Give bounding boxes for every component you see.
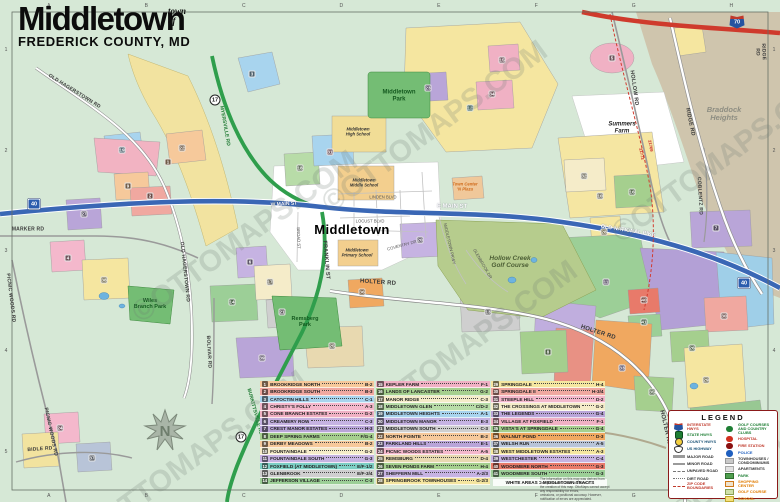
leader-dots	[560, 428, 594, 429]
map-badge-9: 9	[125, 183, 132, 190]
index-number: 30	[493, 389, 500, 395]
index-grid-ref: B-2	[365, 441, 373, 446]
index-number: 22	[377, 433, 384, 439]
index-row: 21MIDDLETOWN SOUTHC-3	[376, 426, 490, 433]
index-name: SEVEN PONDS FARM	[386, 464, 434, 469]
index-grid-ref: G-4	[596, 426, 604, 431]
index-name: FOXFIELD (AT MIDDLETOWN)	[270, 464, 337, 469]
index-row: 35VISTA'S AT SPRINGDALEG-4	[491, 426, 605, 433]
index-grid-ref: A-5	[596, 441, 604, 446]
sw-lightgray-icon	[723, 466, 736, 473]
map-badge-12: 12	[467, 105, 474, 112]
legend-item: HOSPITAL	[723, 435, 774, 442]
index-number: 37	[493, 441, 500, 447]
index-name: STEEPLE HILL	[501, 397, 534, 402]
leader-dots	[438, 428, 479, 429]
index-name: WALNUT POND	[501, 434, 536, 439]
map-badge-4: 4	[65, 255, 72, 262]
index-row: 39WESTCHESTERC-4	[491, 455, 605, 462]
legend-item-label: SHOPPING CENTER	[738, 480, 774, 488]
leader-dots	[415, 457, 478, 458]
compass-rose: N	[143, 408, 187, 457]
index-number: 1	[262, 381, 269, 387]
index-grid-ref: B-2	[480, 434, 488, 439]
dot-green-icon	[723, 426, 736, 433]
index-row: 3CATOCTIN HILLSC-1	[260, 396, 374, 403]
index-row: 22NORTH POINTEB-2	[376, 433, 490, 440]
map-badge-13: 13	[485, 309, 492, 316]
index-name: DERBY MEADOWS	[270, 441, 313, 446]
legend-item: MINOR ROAD	[672, 460, 723, 467]
index-grid-ref: A-3	[596, 449, 604, 454]
index-row: 14JEFFERSON VILLAGEC-3	[260, 478, 374, 485]
md-shield: 17	[210, 95, 221, 106]
index-row: 36WALNUT PONDD-3	[491, 433, 605, 440]
title-block: town of Middletown FREDERICK COUNTY, MD	[18, 2, 190, 49]
map-badge-35: 35	[649, 389, 656, 396]
index-name: GLENBROOK	[270, 471, 300, 476]
index-grid-ref: H-4	[596, 382, 604, 387]
index-row: 24PICNIC WOODS ESTATESA-5	[376, 448, 490, 455]
index-number: 35	[493, 426, 500, 432]
index-grid-ref: G-2	[365, 449, 373, 454]
map-badge-8: 8	[545, 349, 552, 356]
grid-letter: D	[339, 3, 343, 9]
index-row: 15KEPLER FARMF-1	[376, 381, 490, 388]
index-grid-ref: C/D-2	[476, 404, 488, 409]
legend-item-label: GOLF COURSE	[738, 490, 767, 494]
legend-item-label: MINOR ROAD	[687, 462, 713, 466]
legend-item-label: POLICE	[738, 451, 752, 455]
index-name: CONE BRANCH ESTATES	[270, 411, 327, 416]
line-dirt-icon	[672, 475, 685, 482]
index-grid-ref: E-3	[481, 419, 488, 424]
index-name: MANOR RIDGE	[386, 397, 420, 402]
index-grid-ref: G-3	[596, 464, 604, 469]
index-name: DEEP SPRING FARMS	[270, 434, 320, 439]
index-name: MIDDLETOWN GLEN	[386, 404, 433, 409]
index-name: FOUNTAINDALE	[270, 449, 307, 454]
line-zip-icon	[672, 483, 685, 490]
legend-box: LEGEND INTERSTATE HWYSSTATE HWYSCOUNTY H…	[668, 410, 778, 499]
legend-item-label: US HIGHWAY	[687, 447, 712, 451]
index-name: WELSH RUN	[501, 441, 529, 446]
leader-dots	[428, 442, 478, 443]
index-grid-ref: G-3	[596, 471, 604, 476]
index-name: LANDS OF LANCASTER	[386, 389, 440, 394]
map-badge-33: 33	[619, 365, 626, 372]
index-row: 1BROOKRIDGE NORTHB-2	[260, 381, 374, 388]
index-grid-ref: F/G-4	[361, 434, 373, 439]
index-grid-ref: G-2	[365, 411, 373, 416]
map-badge-25: 25	[329, 343, 336, 350]
interstate-icon	[672, 424, 685, 431]
leader-dots	[309, 450, 363, 451]
leader-dots	[531, 442, 593, 443]
line-major-icon	[672, 453, 685, 460]
index-grid-ref: G-3	[365, 456, 373, 461]
legend-title: LEGEND	[672, 413, 774, 422]
leader-dots	[582, 405, 593, 406]
leader-dots	[442, 390, 478, 391]
index-name: VILLAGE AT FOXFIELD	[501, 419, 553, 424]
index-number: 12	[262, 463, 269, 469]
leader-dots	[549, 472, 593, 473]
map-badge-15: 15	[499, 57, 506, 64]
disclaimer-line: the creation of this map. OttoMaps canno…	[540, 485, 610, 493]
index-name: KEPLER FARM	[386, 382, 420, 387]
title-prefix: town of	[168, 6, 190, 26]
map-badge-32: 32	[581, 173, 588, 180]
leader-dots	[425, 472, 474, 473]
map-badge-40: 40	[641, 297, 648, 304]
line-unpaved-icon	[672, 468, 685, 475]
grid-number: 3	[5, 248, 8, 254]
leader-dots	[538, 390, 590, 391]
index-grid-ref: C-1	[365, 397, 373, 402]
map-canvas: ©OTTOMAPS.COM©OTTOMAPS.COM©OTTOMAPS.COM©…	[0, 0, 780, 502]
leader-dots	[555, 420, 595, 421]
index-name: SPRINGBROOK TOWNHOUSES	[386, 478, 457, 483]
index-number: 38	[493, 448, 500, 454]
map-badge-22: 22	[179, 145, 186, 152]
index-grid-ref: H-3/4	[592, 389, 603, 394]
map-badge-38: 38	[101, 277, 108, 284]
index-grid-ref: G-2	[480, 389, 488, 394]
index-grid-ref: A-3	[365, 404, 373, 409]
index-number: 39	[493, 456, 500, 462]
map-badge-41: 41	[641, 319, 648, 326]
index-row: 29SPRINGDALEH-4	[491, 381, 605, 388]
index-row: 13GLENBROOKE/F-3/4	[260, 470, 374, 477]
legend-item-label: DIRT ROAD	[687, 477, 709, 481]
leader-dots	[534, 383, 594, 384]
leader-dots	[311, 420, 363, 421]
sw-school-icon	[723, 496, 736, 502]
page-title: Middletown	[18, 2, 190, 37]
leader-dots	[439, 420, 479, 421]
index-name: MIDDLETOWN MANOR	[386, 419, 437, 424]
index-number: 4	[262, 403, 269, 409]
leader-dots	[311, 398, 363, 399]
grid-letter: A	[47, 493, 50, 499]
index-grid-ref: B-3	[365, 389, 373, 394]
index-number: 40	[493, 463, 500, 469]
dot-darkred-icon	[723, 443, 736, 450]
index-number: 24	[377, 448, 384, 454]
index-number: 21	[377, 426, 384, 432]
grid-letter: D	[339, 493, 343, 499]
index-row: 8DEEP SPRING FARMSF/G-4	[260, 433, 374, 440]
index-name: CREAMERY ROW	[270, 419, 309, 424]
index-name: THE LEGENDS	[501, 411, 534, 416]
index-number: 3	[262, 396, 269, 402]
grid-letter: F	[535, 3, 538, 9]
index-row: 28SPRINGBROOK TOWNHOUSESG-2/3	[376, 478, 490, 485]
grid-number: 4	[773, 348, 776, 354]
index-grid-ref: E/F-3/4	[357, 471, 372, 476]
index-row: 11FOUNTAINDALE SOUTHG-3	[260, 455, 374, 462]
legend-item-label: TOWNHOUSES / CONDOMINIUMS	[738, 457, 774, 465]
us-icon	[672, 446, 685, 453]
index-number: 33	[493, 411, 500, 417]
index-grid-ref: A-1	[480, 411, 488, 416]
index-row: 27SHEFFERN MILLA-2/3	[376, 470, 490, 477]
index-grid-ref: C-3	[480, 397, 488, 402]
leader-dots	[322, 390, 363, 391]
map-badge-6: 6	[247, 259, 254, 266]
map-badge-5: 5	[609, 55, 616, 62]
index-number: 9	[262, 441, 269, 447]
map-badge-28: 28	[601, 229, 608, 236]
map-badge-2: 2	[147, 193, 154, 200]
index-name: SHEFFERN MILL	[386, 471, 424, 476]
index-row: 16LANDS OF LANCASTERG-2	[376, 388, 490, 395]
legend-item-label: UNPAVED ROAD	[687, 469, 718, 473]
index-row: 20MIDDLETOWN MANORE-3	[376, 418, 490, 425]
legend-item: GOLF COURSES AND COUNTRY CLUBS	[723, 423, 774, 435]
index-number: 29	[493, 381, 500, 387]
index-grid-ref: A-5	[480, 449, 488, 454]
index-name: WEST MIDDLETOWN ESTATES	[501, 449, 570, 454]
legend-item-label: PARK	[738, 474, 749, 478]
index-row: 2BROOKRIDGE SOUTHB-3	[260, 388, 374, 395]
index-grid-ref: D-4	[480, 456, 488, 461]
index-name: SPRINGDALE	[501, 382, 532, 387]
index-name: PARKLAND HILLS	[386, 441, 427, 446]
index-row: 10FOUNTAINDALEG-2	[260, 448, 374, 455]
legend-item: APARTMENTS	[723, 465, 774, 472]
index-name: WOODMERE NORTH	[501, 464, 548, 469]
index-number: 19	[377, 411, 384, 417]
index-row: 4CHRISTY'S FOLLYA-3	[260, 403, 374, 410]
index-name: THE CROSSINGS AT MIDDLETOWN	[501, 404, 580, 409]
index-row: 6CREAMERY ROWC-3	[260, 418, 374, 425]
index-name: BROOKRIDGE NORTH	[270, 382, 320, 387]
index-number: 34	[493, 418, 500, 424]
map-badge-18: 18	[297, 165, 304, 172]
grid-number: 4	[5, 348, 8, 354]
grid-letter: C	[242, 493, 246, 499]
index-row: 17MANOR RIDGEC-3	[376, 396, 490, 403]
index-name: MIDDLETOWN SOUTH	[386, 426, 436, 431]
index-number: 2	[262, 389, 269, 395]
map-badge-23: 23	[425, 85, 432, 92]
map-badge-3: 3	[249, 71, 256, 78]
map-badge-30: 30	[721, 313, 728, 320]
legend-item: GOLF COURSE	[723, 488, 774, 495]
legend-item: ZIP CODE BOUNDARIES	[672, 482, 723, 490]
legend-left-column: INTERSTATE HWYSSTATE HWYSCOUNTY HWYSUS H…	[672, 423, 723, 502]
index-grid-ref: C-3	[480, 426, 488, 431]
index-row: 30SPRINGDALE IIH-3/4	[491, 388, 605, 395]
index-name: CREST MANOR ESTATES	[270, 426, 327, 431]
legend-item-label: FIRE STATION	[738, 444, 764, 448]
title-subtitle: FREDERICK COUNTY, MD	[18, 34, 190, 49]
index-number: 31	[493, 396, 500, 402]
grid-letter: B	[145, 493, 148, 499]
grid-number: 2	[5, 148, 8, 154]
index-number: 18	[377, 403, 384, 409]
map-badge-20: 20	[417, 237, 424, 244]
leader-dots	[329, 413, 362, 414]
index-number: 32	[493, 403, 500, 409]
legend-item: FIRE STATION	[723, 443, 774, 450]
map-badge-29: 29	[703, 377, 710, 384]
index-row: 23PARKLAND HILLSE-1	[376, 441, 490, 448]
legend-item: UNPAVED ROAD	[672, 468, 723, 475]
leader-dots	[536, 413, 593, 414]
index-name: JEFFERSON VILLAGE	[270, 478, 320, 483]
index-number: 36	[493, 433, 500, 439]
legend-item-label: APARTMENTS	[738, 467, 765, 471]
index-number: 15	[377, 381, 384, 387]
leader-dots	[538, 435, 594, 436]
index-grid-ref: B-2	[365, 382, 373, 387]
index-name: CHRISTY'S FOLLY	[270, 404, 311, 409]
index-number: 20	[377, 418, 384, 424]
index-number: 17	[377, 396, 384, 402]
index-row: 33THE LEGENDSG-4	[491, 411, 605, 418]
grid-letter: H	[729, 3, 733, 9]
leader-dots	[421, 398, 478, 399]
line-minor-icon	[672, 461, 685, 468]
leader-dots	[445, 450, 478, 451]
index-name: WOODMERE SOUTH	[501, 471, 547, 476]
map-badge-39: 39	[259, 355, 266, 362]
legend-item: SHOPPING CENTER	[723, 480, 774, 488]
index-name: PICNIC WOODS ESTATES	[386, 449, 444, 454]
map-badge-24: 24	[57, 425, 64, 432]
index-number: 25	[377, 456, 384, 462]
index-number: 10	[262, 448, 269, 454]
index-row: 5CONE BRANCH ESTATESG-2	[260, 411, 374, 418]
index-column: 15KEPLER FARMF-116LANDS OF LANCASTERG-21…	[376, 381, 490, 485]
index-grid-ref: C-3	[365, 419, 373, 424]
index-name: BROOKRIDGE SOUTH	[270, 389, 320, 394]
index-grid-ref: E/F-1/2	[357, 464, 372, 469]
index-number: 6	[262, 418, 269, 424]
map-badge-7: 7	[713, 225, 720, 232]
index-number: 13	[262, 470, 269, 476]
grid-number: 3	[773, 248, 776, 254]
grid-letter: E	[437, 3, 440, 9]
index-name: NORTH POINTE	[386, 434, 421, 439]
index-row: 37WELSH RUNA-5	[491, 441, 605, 448]
index-row: 40WOODMERE NORTHG-3	[491, 463, 605, 470]
index-number: 27	[377, 470, 384, 476]
compass-n-label: N	[160, 423, 171, 440]
index-number: 5	[262, 411, 269, 417]
grid-number: 2	[773, 148, 776, 154]
legend-item: TOWNHOUSES / CONDOMINIUMS	[723, 457, 774, 465]
index-grid-ref: E-1	[481, 441, 488, 446]
leader-dots	[539, 457, 594, 458]
index-grid-ref: C-3	[365, 478, 373, 483]
grid-letter: F	[535, 493, 538, 499]
index-column: 1BROOKRIDGE NORTHB-22BROOKRIDGE SOUTHB-3…	[260, 381, 374, 485]
leader-dots	[423, 435, 478, 436]
index-row: 32THE CROSSINGS AT MIDDLETOWNG-2	[491, 403, 605, 410]
map-badge-36: 36	[359, 289, 366, 296]
grid-number: 1	[5, 47, 8, 53]
index-row: 38WEST MIDDLETOWN ESTATESA-3	[491, 448, 605, 455]
leader-dots	[326, 457, 362, 458]
index-row: 12FOXFIELD (AT MIDDLETOWN)E/F-1/2	[260, 463, 374, 470]
leader-dots	[322, 383, 363, 384]
map-badge-31: 31	[327, 149, 334, 156]
map-badge-34: 34	[489, 91, 496, 98]
index-row: 19MIDDLETOWN HEIGHTSA-1	[376, 411, 490, 418]
leader-dots	[303, 472, 356, 473]
legend-item: SCHOOL	[723, 495, 774, 502]
sw-gray-icon	[723, 458, 736, 465]
leader-dots	[322, 435, 359, 436]
sw-golf-icon	[723, 488, 736, 495]
index-table: 1BROOKRIDGE NORTHB-22BROOKRIDGE SOUTHB-3…	[260, 381, 605, 485]
index-number: 7	[262, 426, 269, 432]
grid-letter: E	[437, 493, 440, 499]
leader-dots	[322, 480, 363, 481]
index-row: 26SEVEN PONDS FARMH-4	[376, 463, 490, 470]
disclaimer-line: omissions, or positional accuracy. Howev…	[540, 493, 610, 501]
leader-dots	[536, 398, 594, 399]
index-grid-ref: G-2/3	[476, 478, 488, 483]
index-row: 25REMSBURGD-4	[376, 455, 490, 462]
leader-dots	[436, 465, 478, 466]
map-badge-1: 1	[165, 159, 172, 166]
legend-item-label: SCHOOL	[738, 497, 755, 501]
index-name: REMSBURG	[386, 456, 413, 461]
index-row: 31STEEPLE HILLD-2	[491, 396, 605, 403]
legend-item: COUNTY HWYS	[672, 438, 723, 445]
legend-item: US HIGHWAY	[672, 446, 723, 453]
grid-number: 1	[773, 47, 776, 53]
map-badge-17: 17	[267, 279, 274, 286]
legend-right-column: GOLF COURSES AND COUNTRY CLUBSHOSPITALFI…	[723, 423, 774, 502]
index-name: MIDDLETOWN HEIGHTS	[386, 411, 440, 416]
map-badge-21: 21	[279, 309, 286, 316]
index-number: 16	[377, 389, 384, 395]
index-grid-ref: G-4	[596, 411, 604, 416]
leader-dots	[458, 480, 474, 481]
index-name: CATOCTIN HILLS	[270, 397, 309, 402]
index-grid-ref: H-4	[480, 464, 488, 469]
map-badge-16: 16	[629, 189, 636, 196]
dot-red-icon	[723, 435, 736, 442]
index-grid-ref: A-2/3	[477, 471, 488, 476]
index-grid-ref: D-3	[596, 434, 604, 439]
legend-item-label: HOSPITAL	[738, 437, 757, 441]
index-row: 7CREST MANOR ESTATESH-3	[260, 426, 374, 433]
index-number: 14	[262, 478, 269, 484]
map-badge-26: 26	[689, 345, 696, 352]
index-number: 26	[377, 463, 384, 469]
legend-item-label: COUNTY HWYS	[687, 440, 716, 444]
leader-dots	[434, 405, 474, 406]
leader-dots	[442, 413, 479, 414]
disclaimer: The information on this map was derived …	[540, 477, 610, 501]
index-grid-ref: F-1	[596, 419, 603, 424]
leader-dots	[329, 428, 363, 429]
leader-dots	[315, 442, 363, 443]
legend-item-label: INTERSTATE HWYS	[687, 423, 723, 431]
us-alt-shield: 40	[28, 199, 41, 210]
leader-dots	[572, 450, 594, 451]
index-name: WESTCHESTER	[501, 456, 537, 461]
leader-dots	[421, 383, 479, 384]
index-number: 28	[377, 478, 384, 484]
